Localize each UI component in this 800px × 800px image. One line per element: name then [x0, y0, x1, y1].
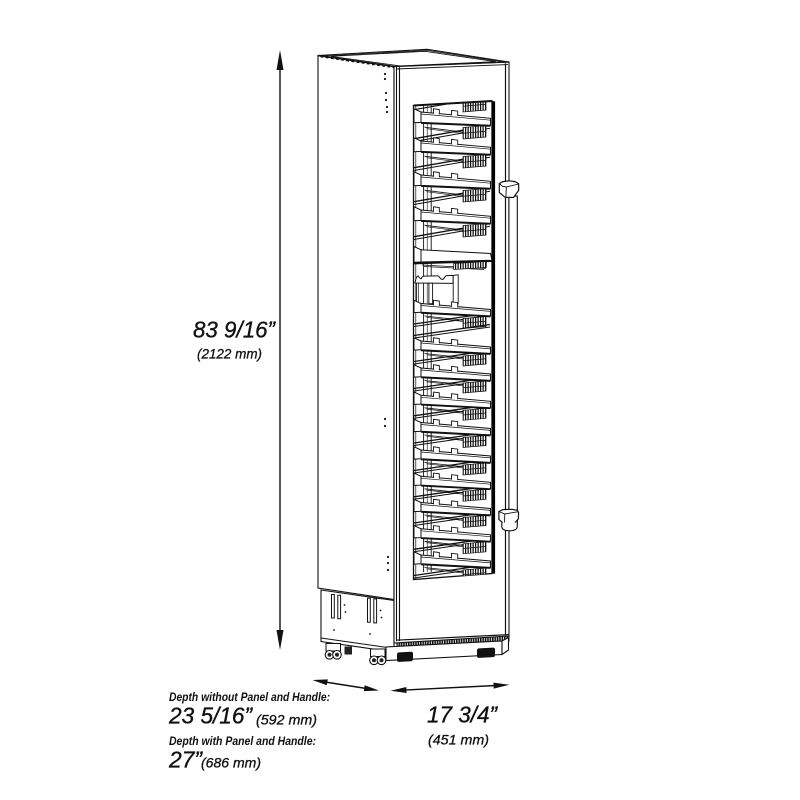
svg-text:23 5/16”: 23 5/16”: [168, 703, 253, 729]
svg-text:(2122 mm): (2122 mm): [197, 346, 262, 362]
svg-text:27”: 27”: [168, 747, 203, 773]
svg-text:83 9/16”: 83 9/16”: [193, 317, 276, 343]
svg-text:(686 mm): (686 mm): [201, 755, 261, 771]
svg-text:(592 mm): (592 mm): [256, 712, 317, 728]
svg-text:(451 mm): (451 mm): [428, 732, 489, 748]
svg-text:17 3/4”: 17 3/4”: [427, 702, 498, 728]
